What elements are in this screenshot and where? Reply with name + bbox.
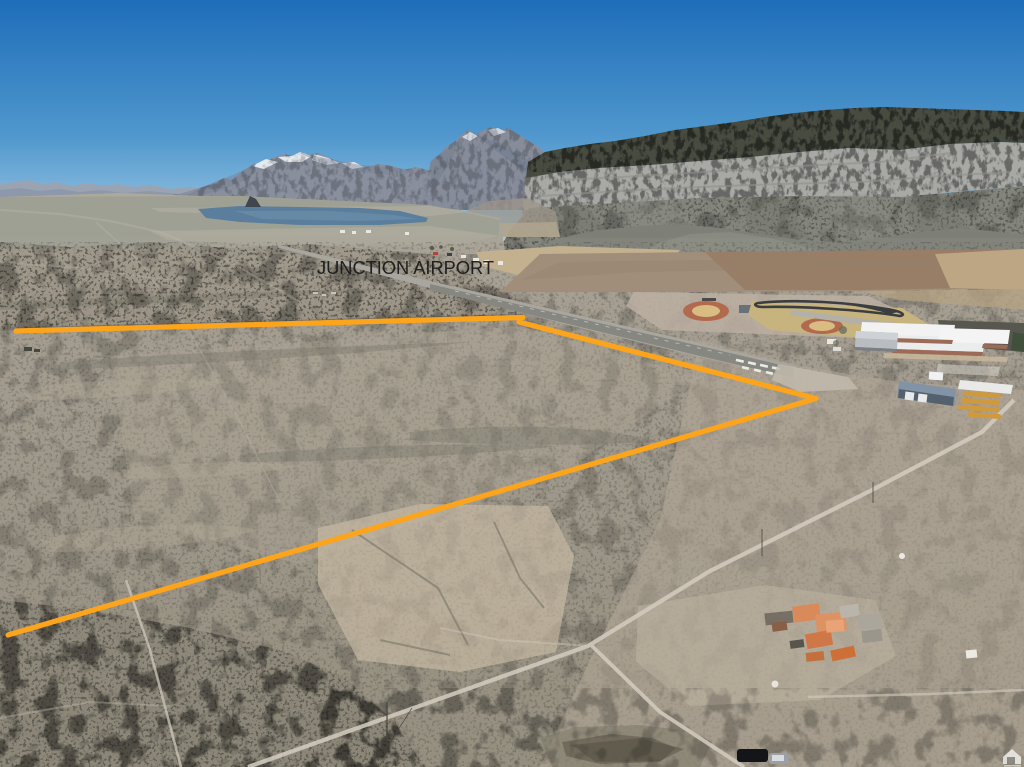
svg-text:JUNCTION AIRPORT: JUNCTION AIRPORT: [317, 257, 494, 278]
